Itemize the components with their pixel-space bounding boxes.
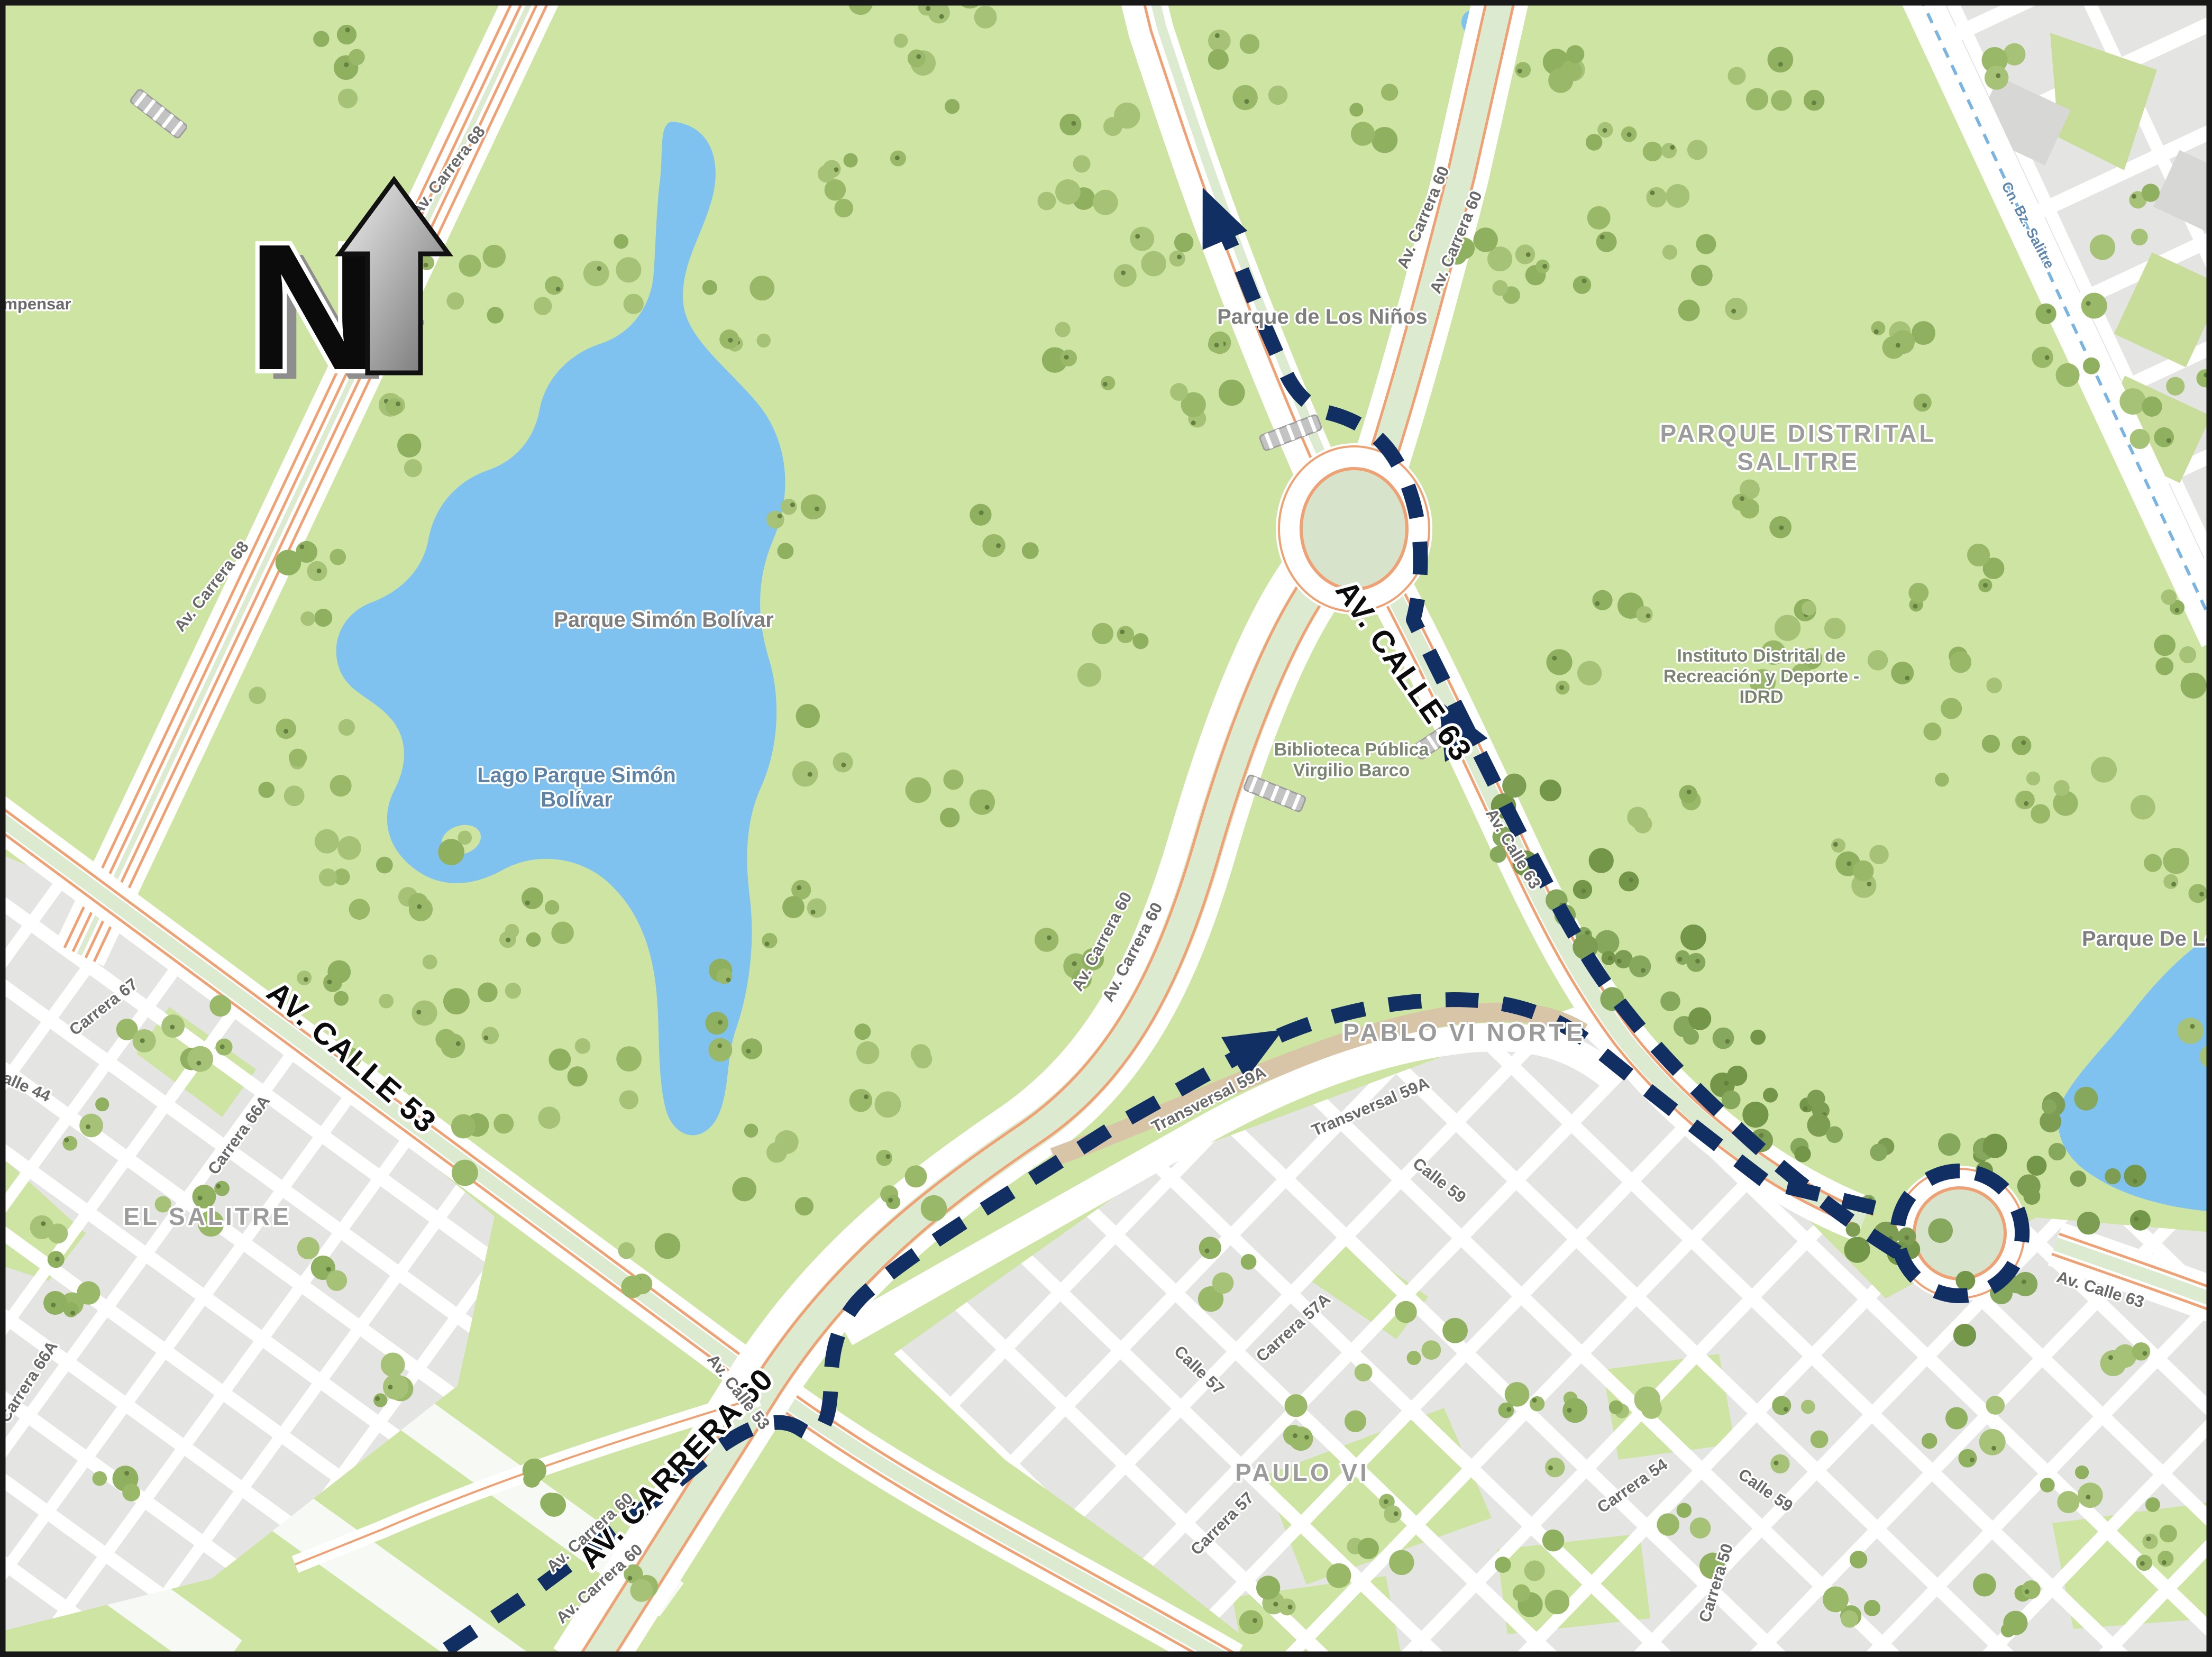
tree-icon	[2049, 1143, 2066, 1160]
tree-icon	[314, 609, 332, 627]
tree-icon	[1807, 1090, 1825, 1107]
tree-icon	[766, 511, 784, 529]
tree-icon	[1662, 245, 1677, 260]
tree-icon	[478, 983, 498, 1003]
tree-icon	[618, 1242, 635, 1259]
tree-icon	[1619, 872, 1639, 892]
tree-icon	[2130, 1210, 2151, 1231]
tree-icon	[443, 988, 470, 1014]
tree-icon	[575, 1038, 591, 1054]
tree-icon	[2056, 363, 2080, 387]
tree-icon	[2035, 304, 2056, 324]
tree-icon	[338, 88, 358, 108]
tree-icon	[1381, 84, 1398, 100]
tree-icon	[2131, 228, 2148, 245]
tree-icon	[1130, 227, 1154, 251]
tree-icon	[334, 991, 349, 1006]
tree-icon	[1804, 90, 1825, 111]
tree-icon	[1406, 1351, 1421, 1365]
tree-icon	[505, 983, 521, 999]
tree-icon	[854, 1023, 871, 1040]
tree-icon	[526, 932, 541, 947]
tree-icon	[655, 1233, 681, 1259]
tree-icon	[2001, 1623, 2015, 1637]
tree-icon	[30, 1215, 53, 1239]
tree-icon	[77, 1281, 100, 1305]
tree-icon	[1345, 1411, 1366, 1432]
tree-icon	[383, 1374, 408, 1399]
tree-icon	[732, 1177, 756, 1202]
tree-icon	[1629, 955, 1651, 977]
tree-icon	[1983, 1134, 2007, 1158]
tree-icon	[630, 1579, 653, 1602]
tree-icon	[744, 1124, 758, 1138]
tree-icon	[762, 933, 777, 948]
tree-icon	[1372, 127, 1397, 153]
tree-icon	[1239, 1610, 1263, 1634]
tree-icon	[886, 1195, 900, 1209]
tree-icon	[276, 550, 301, 575]
tree-icon	[2013, 1272, 2037, 1296]
tree-icon	[1696, 234, 1716, 254]
tree-icon	[452, 1160, 478, 1186]
tree-icon	[397, 434, 421, 457]
tree-icon	[940, 808, 959, 827]
tree-icon	[1713, 1028, 1734, 1049]
tree-icon	[1169, 251, 1185, 267]
tree-icon	[408, 893, 428, 913]
tree-icon	[493, 1114, 514, 1134]
tree-icon	[2057, 1491, 2079, 1513]
tree-icon	[1935, 773, 1949, 787]
tree-icon	[1725, 298, 1747, 320]
tree-icon	[616, 1046, 642, 1072]
tree-icon	[1985, 66, 2008, 89]
tree-icon	[1545, 1590, 1570, 1615]
tree-icon	[1953, 1324, 1976, 1347]
tree-icon	[1349, 103, 1363, 116]
tree-icon	[2166, 377, 2184, 396]
tree-icon	[1722, 1091, 1741, 1110]
tree-icon	[2129, 429, 2150, 449]
tree-icon	[875, 1091, 901, 1118]
tree-icon	[2131, 795, 2155, 820]
tree-icon	[1680, 924, 1706, 950]
tree-icon	[1117, 626, 1135, 643]
tree-icon	[538, 1106, 560, 1129]
tree-icon	[249, 686, 266, 704]
tree-icon	[757, 334, 771, 348]
tree-icon	[749, 276, 774, 300]
tree-icon	[1677, 1503, 1692, 1518]
tree-icon	[435, 1029, 456, 1050]
tree-icon	[1908, 583, 1928, 603]
tree-icon	[545, 276, 563, 295]
tree-icon	[1092, 623, 1113, 644]
tree-icon	[1351, 122, 1375, 145]
tree-icon	[540, 1493, 561, 1514]
tree-icon	[379, 994, 394, 1009]
tree-icon	[1740, 499, 1759, 518]
tree-icon	[1268, 86, 1288, 105]
tree-icon	[122, 1484, 140, 1502]
tree-icon	[1912, 321, 1935, 345]
tree-icon	[796, 704, 820, 728]
tree-icon	[1678, 299, 1700, 321]
tree-icon	[1823, 1587, 1849, 1613]
tree-icon	[373, 1393, 387, 1407]
tree-icon	[1596, 232, 1617, 252]
tree-icon	[905, 1165, 927, 1187]
tree-icon	[1841, 1610, 1858, 1628]
tree-icon	[1035, 928, 1058, 951]
tree-icon	[92, 1471, 107, 1486]
tree-icon	[1609, 1400, 1623, 1414]
tree-icon	[284, 785, 305, 806]
tree-icon	[781, 499, 797, 515]
tree-icon	[2189, 884, 2208, 903]
tree-icon	[1279, 1598, 1296, 1615]
tree-icon	[1055, 322, 1071, 337]
tree-icon	[1746, 88, 1768, 111]
tree-icon	[945, 99, 959, 114]
tree-icon	[619, 1090, 638, 1109]
tree-icon	[1530, 1396, 1545, 1412]
tree-icon	[1421, 1340, 1441, 1360]
tree-icon	[1772, 1396, 1791, 1415]
tree-icon	[2154, 635, 2176, 656]
tree-icon	[1691, 264, 1713, 286]
tree-icon	[337, 836, 361, 860]
tree-icon	[1627, 807, 1648, 828]
tree-icon	[1101, 376, 1115, 390]
tree-icon	[1687, 140, 1707, 160]
tree-icon	[2091, 757, 2117, 783]
tree-icon	[482, 245, 506, 268]
tree-icon	[982, 534, 1005, 557]
tree-icon	[1643, 142, 1662, 161]
tree-icon	[1641, 1398, 1662, 1418]
tree-icon	[451, 1114, 476, 1139]
tree-icon	[970, 789, 995, 814]
tree-icon	[1577, 661, 1602, 685]
tree-icon	[1853, 860, 1874, 882]
tree-icon	[807, 899, 827, 918]
tree-icon	[1864, 1600, 1880, 1616]
tree-icon	[459, 254, 481, 277]
tree-icon	[1132, 633, 1148, 649]
tree-icon	[187, 1046, 213, 1072]
tree-icon	[1515, 62, 1531, 78]
tree-icon	[1846, 1222, 1861, 1237]
tree-icon	[2077, 1212, 2100, 1234]
tree-icon	[330, 549, 346, 565]
tree-icon	[2163, 874, 2178, 889]
tree-icon	[1566, 45, 1584, 63]
tree-icon	[911, 1044, 931, 1064]
tree-icon	[1103, 117, 1122, 136]
tree-icon	[583, 261, 609, 287]
tree-icon	[315, 829, 339, 854]
tree-icon	[1666, 184, 1690, 208]
tree-icon	[705, 1012, 728, 1035]
tree-icon	[349, 899, 370, 920]
map-label: PAULO VI	[1235, 1459, 1369, 1486]
tree-icon	[319, 868, 337, 886]
tree-icon	[1979, 1429, 2006, 1455]
tree-icon	[795, 1197, 813, 1215]
tree-icon	[2054, 780, 2070, 796]
map-label: Parque De Lo	[2082, 927, 2212, 950]
tree-icon	[1595, 930, 1620, 955]
tree-icon	[1358, 1538, 1379, 1559]
tree-icon	[487, 307, 504, 324]
tree-icon	[2163, 848, 2189, 874]
tree-icon	[1794, 1146, 1811, 1162]
tree-icon	[2012, 736, 2031, 755]
tree-icon	[1982, 735, 2000, 753]
tree-icon	[2105, 1168, 2120, 1184]
tree-icon	[297, 1237, 319, 1259]
tree-icon	[1502, 774, 1526, 798]
tree-icon	[1389, 1550, 1414, 1575]
tree-icon	[849, 1089, 872, 1112]
tree-icon	[843, 153, 857, 168]
tree-icon	[1573, 276, 1591, 294]
tree-icon	[523, 1471, 540, 1488]
tree-icon	[1492, 280, 1508, 296]
tree-icon	[1241, 1254, 1257, 1270]
tree-icon	[2017, 1174, 2041, 1197]
tree-icon	[1022, 542, 1039, 559]
tree-icon	[782, 896, 805, 918]
tree-icon	[1870, 1143, 1887, 1161]
tree-icon	[2090, 234, 2115, 260]
tree-icon	[1240, 34, 1260, 54]
tree-icon	[1540, 780, 1561, 801]
tree-icon	[1967, 544, 1990, 566]
tree-icon	[1059, 114, 1081, 135]
tree-icon	[1219, 380, 1245, 406]
map-label: Parque Simón Bolívar	[554, 608, 774, 631]
tree-icon	[921, 1195, 947, 1221]
tree-icon	[313, 31, 329, 47]
tree-icon	[1548, 68, 1573, 93]
tree-icon	[621, 1276, 644, 1298]
tree-icon	[2075, 1466, 2089, 1479]
tree-icon	[1831, 838, 1845, 853]
tree-icon	[1945, 1407, 1968, 1430]
tree-icon	[323, 973, 342, 992]
tree-icon	[1727, 1066, 1747, 1086]
tree-icon	[289, 748, 307, 766]
tree-icon	[1688, 1007, 1711, 1030]
tree-icon	[1661, 143, 1677, 158]
tree-icon	[1811, 1431, 1829, 1449]
tree-icon	[423, 955, 437, 969]
tree-icon	[1513, 1585, 1530, 1602]
tree-icon	[777, 543, 793, 559]
tree-icon	[404, 459, 422, 477]
tree-icon	[766, 1142, 787, 1162]
tree-icon	[1986, 1396, 2005, 1415]
tree-icon	[1660, 991, 1680, 1011]
tree-icon	[446, 292, 464, 310]
tree-icon	[62, 1136, 77, 1151]
tree-icon	[2078, 1482, 2103, 1508]
tree-icon	[412, 1000, 437, 1026]
tree-icon	[1212, 1272, 1234, 1294]
tree-icon	[1073, 155, 1090, 172]
tree-icon	[1950, 651, 1971, 673]
tree-icon	[2070, 1170, 2087, 1187]
tree-icon	[1199, 1237, 1221, 1259]
tree-icon	[79, 1114, 103, 1138]
tree-icon	[1285, 1394, 1308, 1417]
tree-icon	[376, 857, 393, 874]
tree-icon	[1802, 601, 1816, 615]
tree-icon	[1636, 606, 1652, 622]
tree-icon	[2142, 396, 2162, 416]
tree-icon	[258, 782, 275, 798]
tree-icon	[1675, 950, 1689, 965]
tree-icon	[1170, 383, 1188, 401]
tree-icon	[1562, 1398, 1587, 1423]
tree-icon	[1355, 1363, 1373, 1381]
tree-icon	[1868, 650, 1888, 671]
tree-icon	[792, 761, 818, 786]
tree-icon	[833, 752, 853, 772]
tree-icon	[2179, 646, 2196, 663]
tree-icon	[534, 297, 552, 315]
tree-icon	[702, 280, 717, 295]
tree-icon	[2145, 1497, 2160, 1512]
tree-icon	[1750, 1030, 1766, 1045]
tree-icon	[2160, 1525, 2177, 1542]
tree-icon	[214, 1181, 230, 1196]
tree-icon	[551, 921, 573, 944]
tree-icon	[95, 1097, 109, 1111]
tree-icon	[908, 49, 926, 67]
tree-icon	[2027, 1156, 2047, 1176]
map-label: PABLO VI NORTE	[1343, 1019, 1585, 1046]
tree-icon	[326, 1270, 347, 1291]
tree-icon	[943, 770, 963, 790]
tree-icon	[545, 900, 559, 914]
tree-icon	[624, 294, 644, 314]
tree-icon	[568, 1066, 588, 1086]
tree-icon	[1055, 179, 1081, 205]
tree-icon	[381, 1353, 405, 1377]
map-label: EL SALITRE	[123, 1203, 291, 1230]
tree-icon	[337, 25, 357, 44]
tree-icon	[43, 1291, 67, 1315]
tree-icon	[1589, 848, 1614, 873]
tree-icon	[1077, 663, 1101, 686]
tree-icon	[2031, 804, 2050, 823]
tree-icon	[2154, 427, 2174, 447]
tree-icon	[717, 968, 733, 984]
tree-icon	[1542, 1530, 1565, 1552]
tree-icon	[2032, 346, 2053, 368]
tree-icon	[1727, 67, 1745, 85]
tree-icon	[1586, 134, 1603, 151]
tree-icon	[1973, 1573, 1996, 1597]
tree-icon	[2132, 1342, 2151, 1361]
tree-icon	[1442, 1318, 1468, 1343]
tree-icon	[1498, 1403, 1514, 1418]
tree-icon	[2074, 1087, 2098, 1111]
tree-icon	[458, 830, 472, 845]
tree-icon	[1801, 1400, 1815, 1414]
tree-icon	[1768, 47, 1794, 72]
tree-icon	[1256, 1576, 1280, 1599]
map-canvas: CompensarAv. Carrera 68Av. Carrera 68Av.…	[0, 0, 2212, 1657]
tree-icon	[1495, 1557, 1511, 1573]
tree-icon	[1771, 90, 1791, 111]
tree-icon	[349, 49, 365, 66]
tree-icon	[1941, 698, 1962, 719]
tree-icon	[616, 257, 641, 282]
tree-icon	[835, 199, 854, 218]
tree-icon	[2155, 657, 2173, 675]
map-label: Biblioteca PúblicaVirgilio Barco	[1274, 739, 1430, 780]
tree-icon	[2142, 1534, 2158, 1549]
tree-icon	[906, 777, 931, 803]
tree-icon	[2026, 772, 2040, 785]
tree-icon	[742, 1038, 763, 1059]
tree-icon	[974, 6, 997, 29]
tree-icon	[1587, 206, 1611, 230]
tree-icon	[2083, 358, 2100, 374]
tree-icon	[1914, 393, 1932, 411]
tree-icon	[1141, 251, 1166, 277]
tree-icon	[1592, 590, 1612, 610]
tree-icon	[894, 34, 908, 48]
tree-icon	[1869, 845, 1889, 865]
tree-icon	[1547, 649, 1573, 675]
tree-icon	[1690, 1517, 1711, 1539]
tree-icon	[2022, 1580, 2040, 1599]
tree-icon	[1958, 1449, 1977, 1468]
tree-icon	[1545, 1458, 1565, 1477]
tree-icon	[1986, 678, 2002, 693]
tree-icon	[801, 495, 826, 519]
tree-icon	[209, 995, 231, 1017]
tree-icon	[2081, 292, 2107, 318]
tree-icon	[856, 1041, 879, 1064]
tree-icon	[1775, 615, 1800, 640]
tree-icon	[1923, 722, 1941, 740]
tree-icon	[1232, 85, 1257, 110]
tree-icon	[1515, 244, 1535, 264]
tree-icon	[330, 775, 352, 797]
tree-icon	[1395, 1301, 1417, 1323]
tree-icon	[549, 1048, 571, 1070]
tree-icon	[276, 719, 296, 739]
tree-icon	[338, 719, 355, 736]
tree-icon	[1114, 264, 1137, 287]
map-label: Parque de Los Niños	[1217, 305, 1428, 328]
tree-icon	[2040, 1478, 2055, 1493]
tree-icon	[1891, 662, 1914, 684]
tree-icon	[1826, 1126, 1843, 1143]
tree-icon	[1871, 321, 1886, 335]
tree-icon	[708, 1038, 732, 1062]
tree-icon	[1938, 1133, 1960, 1156]
tree-icon	[1037, 192, 1056, 210]
tree-icon	[1770, 1454, 1789, 1473]
